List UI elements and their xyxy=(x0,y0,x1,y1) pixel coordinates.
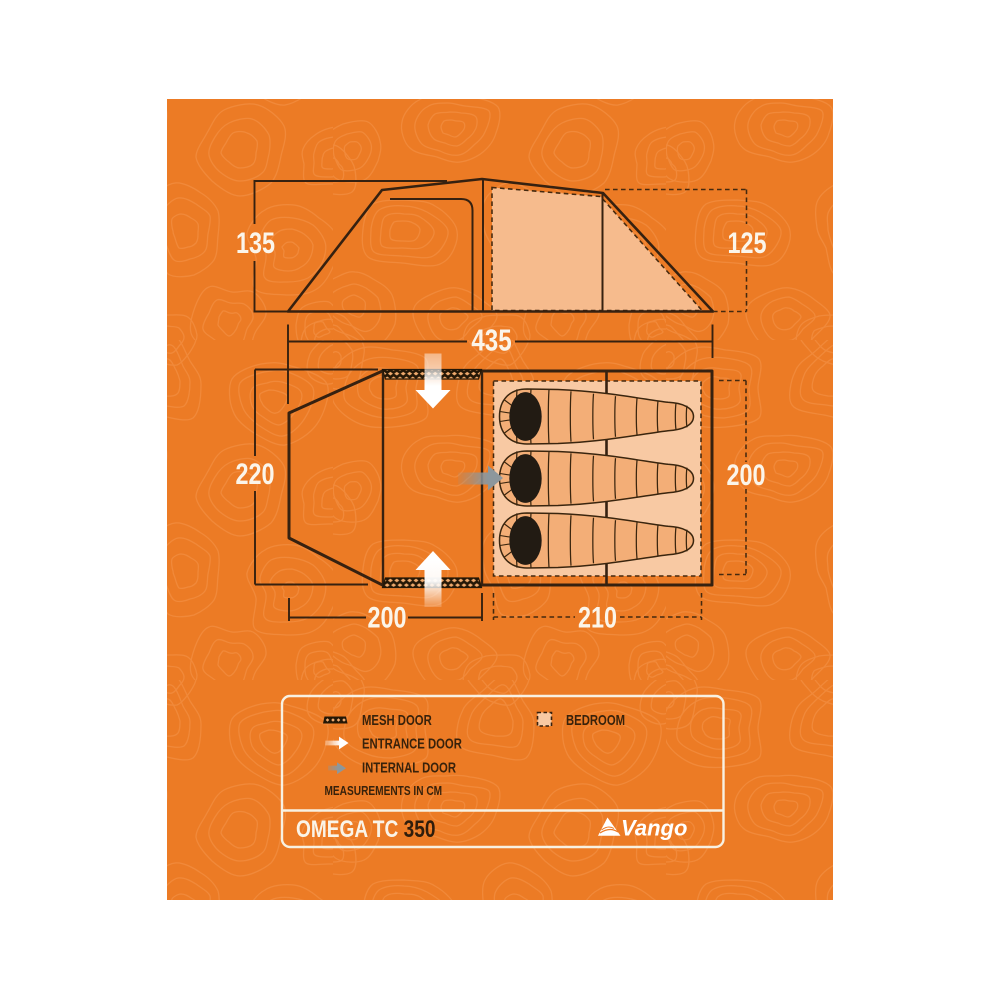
svg-text:200: 200 xyxy=(726,458,765,491)
svg-text:OMEGA TC 350: OMEGA TC 350 xyxy=(296,815,435,843)
svg-text:ENTRANCE DOOR: ENTRANCE DOOR xyxy=(362,735,462,752)
svg-text:INTERNAL DOOR: INTERNAL DOOR xyxy=(362,759,457,776)
svg-text:220: 220 xyxy=(235,457,274,490)
svg-text:MESH DOOR: MESH DOOR xyxy=(362,712,432,729)
svg-text:BEDROOM: BEDROOM xyxy=(566,712,625,729)
svg-text:200: 200 xyxy=(367,601,406,634)
svg-text:135: 135 xyxy=(236,226,275,259)
svg-text:210: 210 xyxy=(578,601,617,634)
svg-text:125: 125 xyxy=(727,226,766,259)
svg-text:Vango: Vango xyxy=(621,816,687,841)
svg-text:435: 435 xyxy=(471,323,511,358)
svg-text:MEASUREMENTS IN CM: MEASUREMENTS IN CM xyxy=(325,784,443,798)
